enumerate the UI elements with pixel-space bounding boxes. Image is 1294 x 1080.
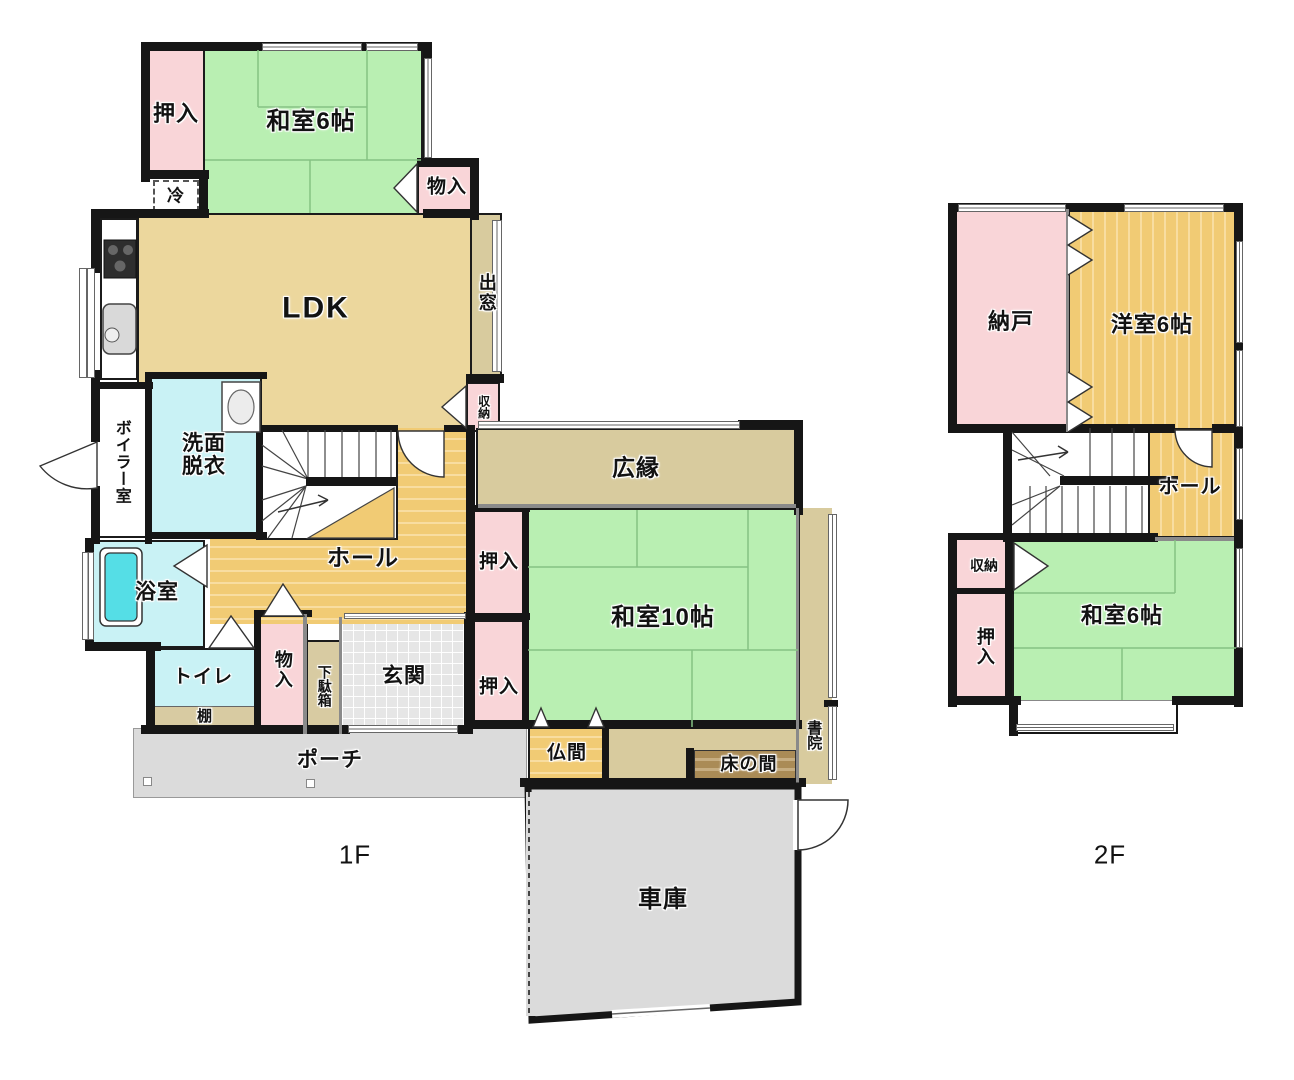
wall — [524, 720, 802, 729]
room-label-oshiire-2f: 押入 — [974, 627, 994, 667]
room-label-monoire-ne: 物入 — [427, 178, 467, 199]
room-label-hiroen: 広縁 — [612, 455, 660, 480]
wall — [1003, 424, 1175, 433]
window — [1236, 448, 1243, 520]
wall — [1005, 536, 1012, 704]
room-label-getabako: 下駄箱 — [316, 665, 331, 707]
wall — [141, 42, 150, 182]
room-label-oshiire-nw: 押入 — [153, 102, 199, 126]
room-label-washitsu6-1f: 和室6帖 — [266, 109, 355, 135]
room-label-shuno-2f: 収納 — [970, 558, 998, 573]
garage-outline — [528, 786, 848, 1020]
window — [366, 43, 418, 51]
room-label-toire: トイレ — [173, 668, 233, 689]
porch-post — [143, 777, 152, 786]
wall — [444, 425, 475, 432]
room-label-oshiire-w-lower: 押入 — [479, 678, 519, 699]
wall — [1003, 533, 1158, 542]
wall — [254, 610, 261, 734]
room-label-tana: 棚 — [197, 709, 213, 726]
wall — [1066, 209, 1069, 432]
room-label-yokushitsu: 浴室 — [135, 580, 179, 603]
wall — [91, 486, 100, 544]
wall — [520, 778, 806, 787]
floor-label-2f: 2F — [1094, 841, 1126, 870]
sliding-door — [344, 613, 466, 619]
sliding-entrance-door — [348, 725, 458, 733]
room-label-senmen: 洗面脱衣 — [179, 432, 229, 478]
window — [1124, 204, 1224, 212]
room-label-monoire-genkan: 物入 — [272, 650, 292, 690]
wall — [796, 508, 799, 784]
wall — [522, 505, 529, 729]
wall — [254, 725, 350, 734]
window — [1236, 548, 1243, 648]
wall — [91, 382, 100, 442]
garage-door-arc — [798, 800, 848, 850]
wall — [146, 642, 155, 734]
wall — [141, 725, 267, 734]
window — [424, 58, 432, 158]
room-label-rei: 冷 — [167, 188, 185, 207]
window — [828, 514, 837, 698]
room-label-boiler: ボイラー室 — [112, 420, 130, 505]
wall — [91, 209, 100, 273]
wall — [466, 374, 504, 383]
room-label-demado: 出窓 — [476, 273, 496, 313]
stairs-1f — [258, 428, 398, 540]
floorplan-canvas: 押入 和室6帖 物入 冷 LDK 出窓 収納 洗面脱衣 ボイラー室 浴室 トイレ… — [0, 0, 1294, 1080]
room-label-butsuma: 仏間 — [547, 744, 587, 765]
room-label-genkan: 玄関 — [382, 664, 426, 687]
wall — [794, 420, 803, 515]
wall — [948, 533, 957, 707]
window — [1236, 241, 1243, 343]
room-label-yoshitsu6: 洋室6帖 — [1111, 313, 1193, 337]
window — [828, 706, 837, 780]
room-label-porch: ポーチ — [297, 748, 363, 771]
wall — [470, 613, 530, 620]
room-label-washitsu6-2f: 和室6帖 — [1081, 604, 1163, 628]
window — [478, 421, 740, 429]
wall — [339, 617, 342, 734]
wall — [91, 209, 209, 218]
wall — [948, 203, 957, 433]
window — [1236, 350, 1243, 427]
wall — [1172, 696, 1243, 705]
wall — [466, 428, 475, 728]
wall — [256, 428, 263, 540]
room-label-hall-1f: ホール — [327, 545, 399, 570]
room-label-shoin: 書院 — [805, 720, 822, 750]
hall-floor-upper — [395, 428, 475, 540]
room-label-garage: 車庫 — [638, 887, 688, 913]
room-label-hall-2f: ホール — [1159, 476, 1222, 498]
wall — [1003, 428, 1012, 540]
wall — [145, 532, 267, 539]
wall — [478, 504, 796, 508]
wall — [145, 372, 267, 379]
window — [82, 552, 94, 640]
room-label-nando: 納戸 — [988, 310, 1034, 334]
room-label-shuno-1f: 収納 — [476, 395, 489, 419]
room-oshiire-w-lower — [470, 620, 528, 726]
floor-label-1f: 1F — [339, 841, 371, 870]
window — [79, 268, 95, 378]
wall — [254, 425, 398, 432]
garage-door-gap — [793, 800, 805, 850]
wall — [145, 372, 152, 544]
window — [262, 43, 362, 51]
wall — [1155, 537, 1235, 541]
wall — [91, 382, 153, 389]
wall — [303, 614, 307, 734]
wall — [602, 722, 609, 784]
room-label-ldk: LDK — [282, 292, 350, 325]
window — [958, 204, 1066, 212]
porch-post — [306, 779, 315, 788]
room-label-washitsu10: 和室10帖 — [611, 605, 715, 631]
balcony-rail — [1016, 724, 1174, 731]
wall — [423, 209, 479, 218]
kitchen-counter — [100, 218, 138, 380]
room-label-tokonoma: 床の間 — [721, 755, 778, 775]
room-label-oshiire-w-upper: 押入 — [479, 553, 519, 574]
